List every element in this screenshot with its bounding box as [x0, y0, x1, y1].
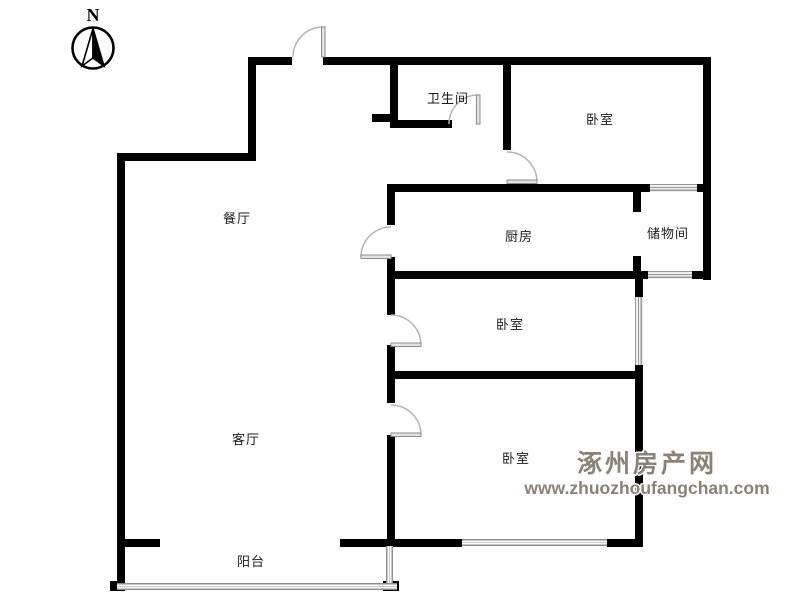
wall-segment [117, 539, 160, 547]
door-arc [391, 405, 421, 435]
wall-segment [387, 371, 643, 379]
door-leaf [391, 433, 421, 437]
door-arc [293, 27, 323, 57]
room-label-dining-room: 餐厅 [197, 211, 277, 227]
wall-segment [248, 57, 256, 161]
wall-segment [340, 539, 462, 547]
room-label-balcony: 阳台 [211, 554, 291, 570]
watermark-site-name: 涿州房产网 [521, 450, 773, 478]
balcony-window [386, 546, 393, 583]
window [648, 271, 692, 279]
compass-icon: N [66, 2, 120, 76]
room-label-bathroom: 卫生间 [408, 91, 488, 107]
wall-segment [387, 271, 648, 279]
door-leaf [322, 27, 326, 57]
wall-segment [697, 184, 711, 192]
window [635, 297, 643, 365]
window [462, 539, 607, 546]
wall-segment [387, 184, 650, 192]
door-arc [507, 152, 537, 182]
wall-segment [117, 153, 125, 590]
room-label-kitchen: 厨房 [479, 229, 559, 245]
room-label-bedroom-top: 卧室 [560, 112, 640, 128]
watermark: 涿州房产网 www.zhuozhoufangchan.com [521, 450, 773, 499]
door-arc [361, 227, 391, 257]
compass-needle-east [93, 29, 104, 67]
wall-segment [703, 57, 711, 280]
window [650, 184, 697, 192]
wall-segment [390, 120, 452, 128]
door-leaf [507, 180, 537, 184]
wall-segment [633, 256, 641, 279]
wall-segment [635, 279, 643, 297]
wall-segment [387, 435, 395, 547]
wall-segment [387, 257, 395, 315]
room-label-storage-room: 储物间 [628, 226, 708, 242]
balcony-window [117, 583, 397, 590]
wall-segment [692, 271, 711, 279]
wall-segment [633, 184, 641, 212]
floor-plan: N 卫生间 卧室 餐厅 厨房 储物间 卧室 客厅 卧室 阳台 涿州房产网 www… [0, 0, 800, 600]
room-label-living-room: 客厅 [206, 432, 286, 448]
compass-circle [73, 28, 114, 69]
wall-segment [607, 539, 643, 547]
wall-segment [323, 57, 711, 65]
room-label-bedroom-middle: 卧室 [470, 317, 550, 333]
door-arc [391, 315, 421, 345]
wall-segment [117, 153, 256, 161]
wall-segment [387, 184, 395, 225]
door-leaf [391, 343, 421, 347]
wall-segment [503, 57, 511, 150]
compass-needle-west [82, 29, 93, 67]
watermark-url: www.zhuozhoufangchan.com [521, 478, 773, 499]
compass-north-label: N [87, 5, 100, 25]
